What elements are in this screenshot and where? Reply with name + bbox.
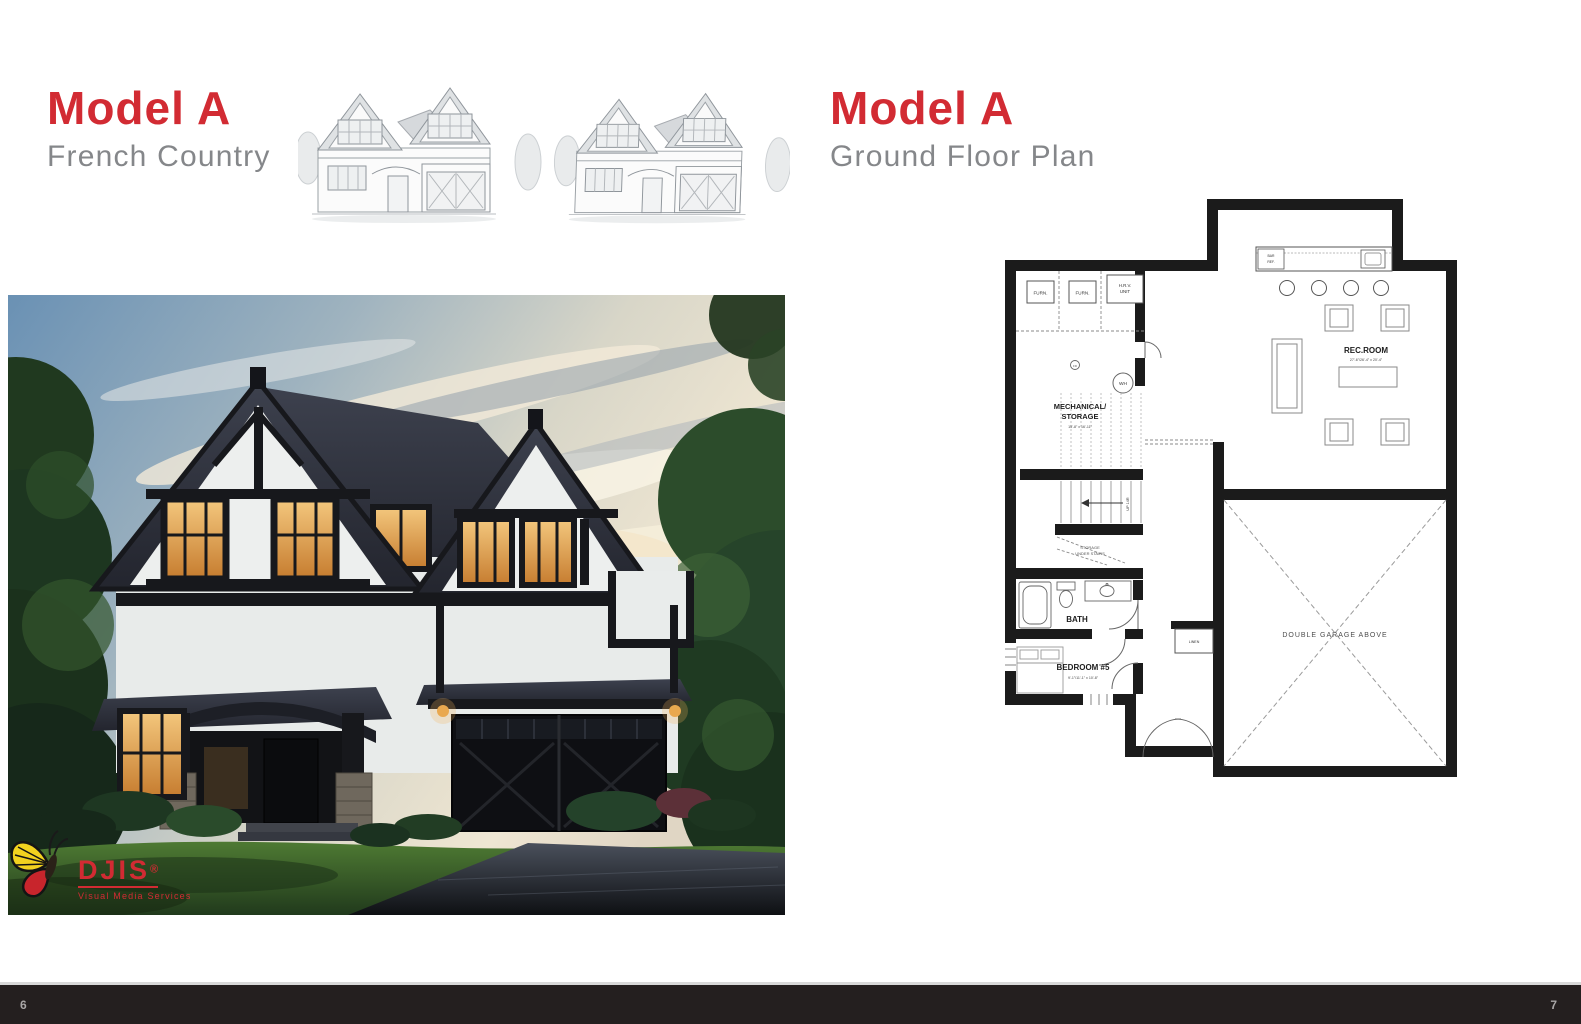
water-heater-label: WH [1119,381,1128,387]
rec-room-furniture [1272,305,1409,445]
logo-text: DJIS® Visual Media Services [78,857,192,901]
footer-bar: 6 7 [0,982,1581,1024]
rec-room-dims: 27'-6"/26'-4" x 20'-4" [1350,358,1383,362]
bar-stool [1344,281,1359,296]
page-number-right: 7 [1550,998,1557,1012]
logo-brand: DJIS [78,855,150,885]
right-page-subtitle: Ground Floor Plan [830,141,1096,173]
bar-area: BAR REF. [1256,247,1392,296]
floor-plan-drawing: UP 14R FURN. FURN. H.R.V. UNIT FD [995,197,1465,791]
furnace-2-label: FURN. [1075,291,1089,296]
hrv-label-line1: H.R.V. [1119,283,1132,288]
stairs-up-label: UP 14R [1126,497,1130,510]
linen-label: LINEN [1189,640,1200,644]
left-page-title: Model A [47,84,271,132]
sketch-elevation-angle [552,94,790,224]
page-number-left: 6 [20,998,27,1012]
storage-label-line1: STORAGE [1080,545,1100,550]
hrv-label-line2: UNIT [1120,289,1131,294]
garage-label: DOUBLE GARAGE ABOVE [1282,632,1387,639]
logo: DJIS® Visual Media Services [4,818,194,918]
mechanical-dims: 15'-8" x 16'-11" [1068,425,1093,429]
plan-dashed-lines [1016,271,1213,565]
butterfly-logo-icon [4,825,82,911]
mechanical-label-line2: STORAGE [1062,412,1099,421]
bar-label-line1: BAR [1268,254,1276,258]
logo-tagline: Visual Media Services [78,891,192,901]
sketch-elevations [298,78,790,234]
registered-mark: ® [150,864,158,876]
left-title-block: Model A French Country [47,84,271,173]
storage-label-line2: UNDER STAIRS [1075,551,1105,556]
up-arrow-icon [1081,499,1089,507]
bath-label: BATH [1066,615,1088,624]
bar-stool [1280,281,1295,296]
rec-room-label: REC.ROOM [1344,346,1388,355]
mechanical-room: FURN. FURN. H.R.V. UNIT FD WH MECHANICAL… [1027,275,1143,429]
mechanical-label-line1: MECHANICAL/ [1054,402,1107,411]
sketch-elevation-front [298,78,790,234]
right-page-title: Model A [830,84,1096,132]
bar-label-line2: REF. [1267,260,1274,264]
bar-stool [1374,281,1389,296]
floor-plan: UP 14R FURN. FURN. H.R.V. UNIT FD [995,197,1465,791]
left-page-subtitle: French Country [47,141,271,173]
bedroom-label: BEDROOM #5 [1057,663,1110,672]
bar-stool [1312,281,1327,296]
brochure-spread: Model A French Country Model A Ground Fl… [0,0,1581,1024]
furnace-1-label: FURN. [1033,291,1047,296]
right-title-block: Model A Ground Floor Plan [830,84,1096,173]
bedroom-dims: 9'-1"/11'-1" x 10'-8" [1068,676,1099,680]
